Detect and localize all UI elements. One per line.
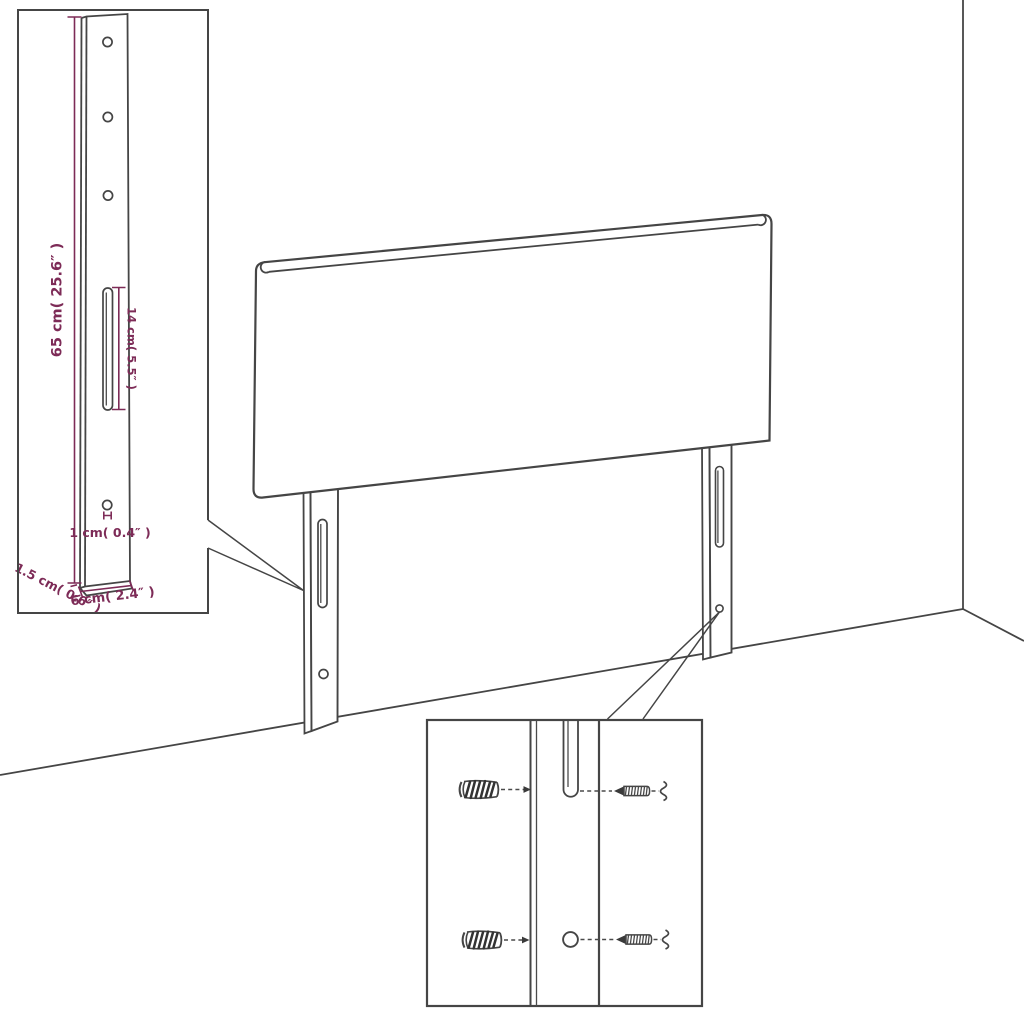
mounting-detail-inset	[427, 612, 720, 1006]
left-leg-front-face	[311, 487, 339, 731]
right-leg-front-face	[710, 442, 732, 658]
dimension-1cm-label: 1 cm( 0.4″ )	[69, 525, 150, 540]
mounting-detail-inset-box	[427, 720, 702, 1006]
mounting-detail-callout-lines	[608, 612, 720, 719]
assembly-diagram: 65 cm( 25.6″ ) 14 cm( 5.5″ ) 1 cm( 0.4″ …	[0, 0, 1024, 1024]
floor-line-right	[963, 609, 1024, 641]
mounting-leg-right	[702, 442, 732, 660]
leg-detail-callout-lines	[208, 520, 304, 591]
mounting-leg-left	[304, 487, 339, 734]
dimension-14cm-label: 14 cm( 5.5″ )	[125, 307, 139, 390]
headboard	[254, 215, 772, 498]
dimension-65cm-label: 65 cm( 25.6″ )	[50, 243, 66, 358]
headboard-panel	[254, 215, 772, 498]
diagram-canvas: 65 cm( 25.6″ ) 14 cm( 5.5″ ) 1 cm( 0.4″ …	[0, 0, 1024, 1024]
